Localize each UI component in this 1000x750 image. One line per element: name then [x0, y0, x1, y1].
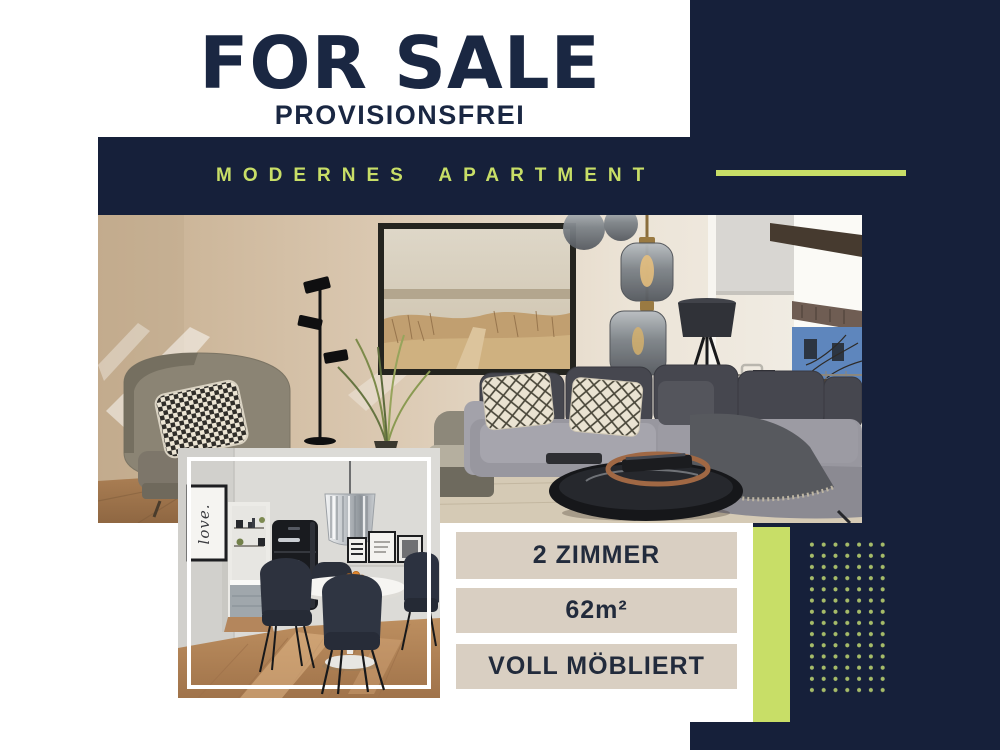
- dune-wall-art: [378, 223, 576, 375]
- feature-rooms-label: 2 ZIMMER: [533, 541, 660, 570]
- banner-dash-line: [716, 170, 906, 176]
- small-photo: love.: [178, 448, 440, 698]
- green-accent-stripe: [753, 527, 790, 722]
- page-subtitle: PROVISIONSFREI: [110, 100, 690, 131]
- feature-badge-furnished: VOLL MÖBLIERT: [456, 644, 737, 689]
- feature-furnished-label: VOLL MÖBLIERT: [488, 652, 705, 681]
- page-title: FOR SALE: [110, 26, 690, 102]
- banner-label: MODERNES APARTMENT: [216, 165, 655, 187]
- kitchen-cabinet: [230, 585, 266, 617]
- love-poster: love.: [188, 486, 226, 560]
- feature-area-label: 62m²: [565, 596, 627, 625]
- feature-badge-area: 62m²: [456, 588, 737, 633]
- feature-badge-rooms: 2 ZIMMER: [456, 532, 737, 579]
- banner-band: MODERNES APARTMENT: [98, 137, 1000, 215]
- small-photo-illustration: love.: [178, 448, 440, 698]
- dots-pattern: [806, 539, 889, 696]
- poster: FOR SALE PROVISIONSFREI MODERNES APARTME…: [0, 0, 1000, 750]
- love-sign-text: love.: [195, 504, 213, 545]
